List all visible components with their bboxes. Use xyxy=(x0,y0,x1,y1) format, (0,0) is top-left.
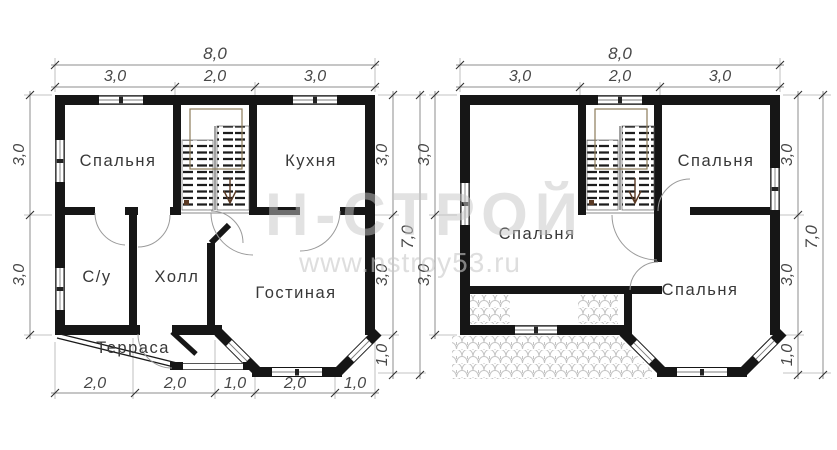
plan1-dim-top-3: 3,0 xyxy=(304,68,326,85)
plan1-dim-right-1: 3,0 xyxy=(374,144,391,166)
room-label-terrace: Терраса xyxy=(96,339,170,357)
watermark: Н-СТРОЙ www.nstroy53.ru xyxy=(265,181,585,278)
plan1-dim-bottom-5: 1,0 xyxy=(344,375,366,392)
plan2-dim-top-1: 3,0 xyxy=(509,68,531,85)
plan2-dim-left-1: 3,0 xyxy=(416,144,433,166)
plan1-bay-window xyxy=(218,332,378,376)
room-label-bathroom: С/у xyxy=(82,268,111,286)
plan1-dim-top-1: 3,0 xyxy=(104,68,126,85)
room-label-living-room: Гостиная xyxy=(255,284,336,302)
plan2-dim-right-2: 3,0 xyxy=(779,264,796,286)
floor-plans-drawing: 8,0 3,0 2,0 3,0 3,0 3,0 3,0 3,0 1,0 7,0 … xyxy=(0,0,837,450)
room-label-hall: Холл xyxy=(155,268,200,286)
plan2-dim-right-3: 1,0 xyxy=(779,344,796,366)
plan1-dim-bottom-2: 2,0 xyxy=(163,375,186,392)
room-label-bedroom-bottom: Спальня xyxy=(662,281,739,299)
plan2-dim-total-height: 7,0 xyxy=(802,225,821,249)
room-label-bedroom: Спальня xyxy=(80,152,157,170)
plan1-dim-right-3: 1,0 xyxy=(374,344,391,366)
plan1-dim-top-2: 2,0 xyxy=(203,68,226,85)
plan2-dim-total-width: 8,0 xyxy=(608,44,632,63)
watermark-brand: Н-СТРОЙ xyxy=(265,181,585,248)
plan1-dim-bottom-1: 2,0 xyxy=(83,375,106,392)
floor-plan-sheet: 8,0 3,0 2,0 3,0 3,0 3,0 3,0 3,0 1,0 7,0 … xyxy=(0,0,837,450)
room-label-kitchen: Кухня xyxy=(285,152,337,170)
plan2-dim-right-1: 3,0 xyxy=(779,144,796,166)
plan1-dim-total-width: 8,0 xyxy=(203,44,227,63)
room-label-bedroom-top: Спальня xyxy=(678,152,755,170)
watermark-website: www.nstroy53.ru xyxy=(298,247,521,278)
plan1-staircase xyxy=(181,109,249,213)
plan1-dim-bottom-4: 2,0 xyxy=(283,375,306,392)
plan2-dim-top-3: 3,0 xyxy=(709,68,731,85)
plan2-dim-top-2: 2,0 xyxy=(608,68,631,85)
plan1-dim-left-1: 3,0 xyxy=(11,144,28,166)
plan1-dim-left-2: 3,0 xyxy=(11,264,28,286)
plan1-dim-bottom-3: 1,0 xyxy=(224,375,246,392)
plan2-staircase xyxy=(586,109,654,213)
